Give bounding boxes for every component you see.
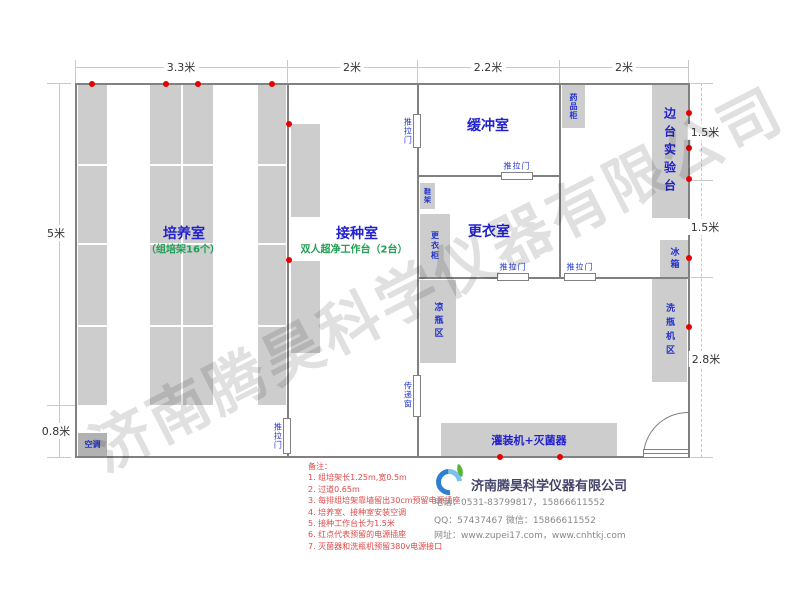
dim-tick [688, 60, 689, 83]
wall-culture-inoculation [287, 83, 289, 458]
sliding-door [564, 273, 596, 281]
fridge-block: 冰箱 [660, 240, 688, 277]
clean-bench-1 [291, 124, 320, 217]
power-outlet-dot [286, 121, 292, 127]
shoe-rack-label: 鞋架 [423, 188, 433, 204]
shelf-seam [258, 243, 286, 245]
power-outlet-dot [163, 81, 169, 87]
wall-buffer-changing [417, 175, 561, 177]
shelf-seam [78, 325, 107, 327]
dim-top-4: 2米 [612, 59, 636, 75]
inoculation-room-subtitle: 双人超净工作台（2台） [301, 241, 408, 256]
wall-changing-bottomroom [417, 277, 690, 279]
sliding-door [501, 172, 533, 180]
power-outlet-dot [686, 176, 692, 182]
sliding-door [283, 418, 291, 454]
floor-plan: 3.3米 2米 2.2米 2米 5米 0.8米 1.5米 1.5米 2.8米 空… [0, 0, 800, 600]
dim-tick [559, 60, 560, 83]
notes-heading: 备注： [308, 461, 518, 472]
dim-left-2: 0.8米 [39, 423, 74, 439]
dim-top-1: 3.3米 [164, 59, 199, 75]
sliding-door-label: 推拉门 [567, 264, 594, 273]
wall-left [75, 83, 77, 458]
power-outlet-dot [686, 324, 692, 330]
wall-buffer-lab [559, 83, 561, 279]
power-outlet-dot [686, 255, 692, 261]
washer-area-block: 洗瓶机区 [652, 279, 687, 382]
power-outlet-dot [686, 110, 692, 116]
dim-tick [417, 60, 418, 83]
power-outlet-dot [195, 81, 201, 87]
washer-area-label: 洗瓶机区 [663, 303, 676, 359]
dim-left-1: 5米 [44, 225, 68, 241]
culture-shelf-column [258, 85, 286, 405]
dim-tick [47, 457, 71, 458]
sliding-door-label: 推拉门 [504, 163, 531, 172]
culture-shelf-column [78, 85, 107, 405]
dim-right-2: 1.5米 [688, 219, 723, 235]
company-phone: 电话：0531-83799817，15866611552 [434, 495, 605, 508]
medicine-cabinet-label: 药品柜 [568, 93, 579, 120]
power-outlet-dot [686, 145, 692, 151]
transfer-window-label: 传递窗 [403, 382, 412, 409]
power-outlet-dot [497, 454, 503, 460]
company-website: 网址：www.zupei17.com，www.cnhtkj.com [434, 528, 626, 541]
changing-room-title: 更衣室 [468, 221, 510, 241]
dim-tick [47, 83, 71, 84]
buffer-room-title: 缓冲室 [467, 115, 509, 135]
dim-right-3: 2.8米 [689, 351, 724, 367]
power-outlet-dot [557, 454, 563, 460]
sliding-door [497, 273, 529, 281]
company-qq: QQ：57437467 微信：15866611552 [434, 513, 596, 526]
filling-sterilizer-label: 灌装机+灭菌器 [491, 432, 566, 448]
shelf-seam [78, 243, 107, 245]
dim-tick [691, 180, 713, 181]
shelf-seam [78, 164, 107, 166]
dim-top-3: 2.2米 [471, 59, 506, 75]
power-outlet-dot [89, 81, 95, 87]
power-outlet-dot [286, 257, 292, 263]
dim-tick [691, 277, 713, 278]
entrance-door-leaf [643, 449, 689, 458]
dim-right-1: 1.5米 [688, 124, 723, 140]
shelf-seam [150, 164, 213, 166]
air-conditioner-label: 空调 [85, 439, 101, 450]
power-outlet-dot [269, 81, 275, 87]
left-dimension-line [59, 83, 60, 457]
sliding-door-label: 推拉门 [500, 264, 527, 273]
side-bench-label: 边台实验台 [662, 107, 679, 197]
transfer-window [413, 375, 421, 417]
dim-tick [691, 457, 713, 458]
medicine-cabinet-block: 药品柜 [562, 85, 585, 128]
wall-bottom [75, 456, 690, 458]
company-name: 济南腾昊科学仪器有限公司 [471, 475, 627, 494]
shoe-rack-block: 鞋架 [420, 183, 435, 209]
sliding-door [413, 114, 421, 148]
shelf-seam [150, 325, 213, 327]
dim-tick [75, 60, 76, 83]
clean-bench-2 [291, 261, 320, 353]
fridge-label: 冰箱 [668, 247, 681, 271]
culture-room-subtitle: （组培架16个） [146, 241, 220, 256]
company-logo-icon [436, 469, 462, 495]
cooling-area-block: 凉瓶区 [420, 280, 456, 363]
wardrobe-block: 更衣柜 [420, 214, 450, 277]
wardrobe-label: 更衣柜 [430, 231, 441, 261]
dim-tick [287, 60, 288, 83]
dim-top-2: 2米 [340, 59, 364, 75]
cooling-area-label: 凉瓶区 [432, 302, 445, 341]
shelf-seam [258, 164, 286, 166]
filling-sterilizer-block: 灌装机+灭菌器 [441, 423, 617, 456]
air-conditioner-block: 空调 [78, 433, 107, 456]
sliding-door-label: 推拉门 [273, 423, 282, 450]
dim-tick [47, 405, 75, 406]
side-bench-block: 边台实验台 [652, 85, 688, 218]
note-item: 7. 灭菌器和洗瓶机预留380v电源接口 [308, 541, 518, 552]
sliding-door-label: 推拉门 [403, 118, 412, 145]
shelf-seam [258, 325, 286, 327]
dim-tick [691, 83, 713, 84]
